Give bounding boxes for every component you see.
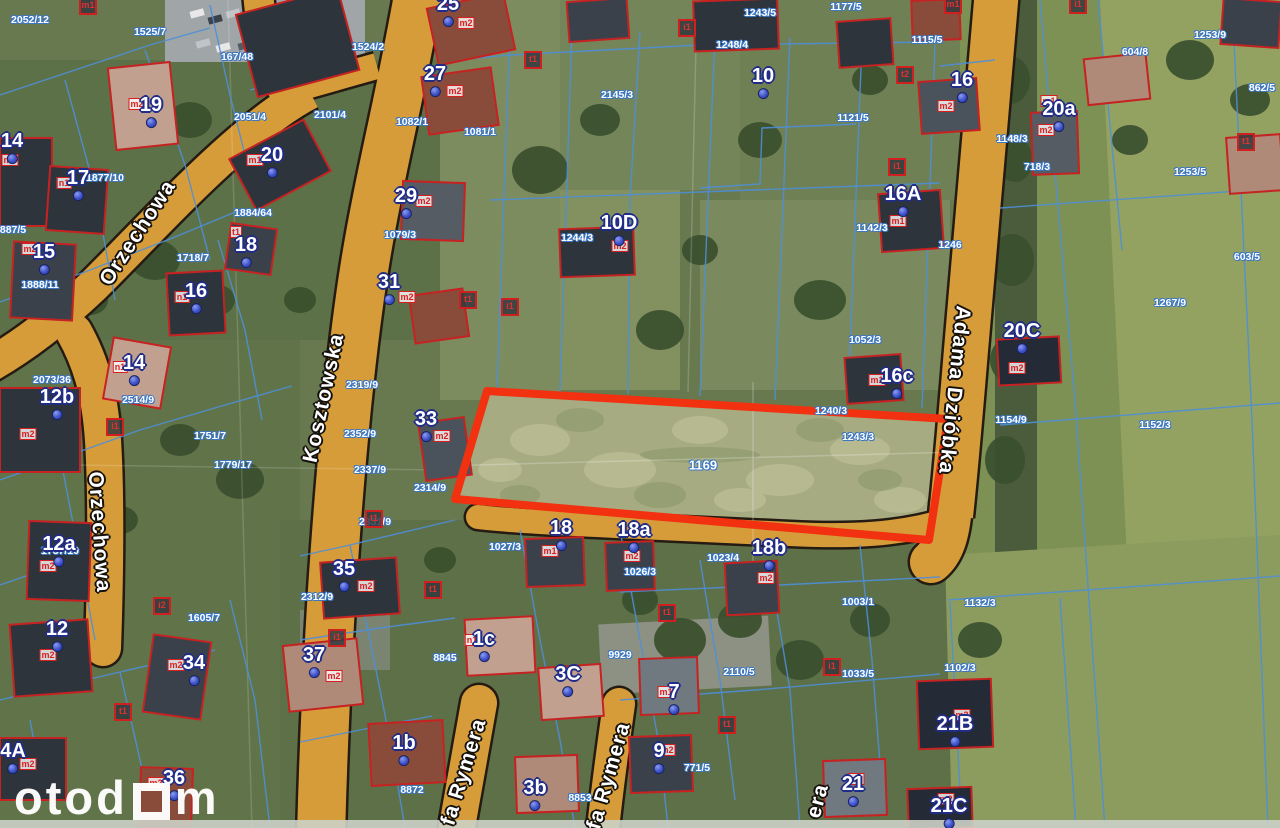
house-number-marker[interactable]: 29 (395, 186, 417, 219)
street-name-label: Orzechowa (95, 176, 181, 291)
house-number-marker[interactable]: 35 (333, 559, 355, 592)
address-point-dot[interactable] (129, 375, 140, 386)
parcel-number-label: 1253/5 (1174, 167, 1206, 178)
house-number-label: 10 (752, 66, 774, 86)
house-number-label: 16 (185, 281, 207, 301)
address-point-dot[interactable] (669, 704, 680, 715)
address-point-dot[interactable] (189, 675, 200, 686)
house-number-label: 19 (140, 95, 162, 115)
parcel-number-label: 1240/3 (815, 406, 847, 417)
address-point-dot[interactable] (897, 206, 908, 217)
building-code-chip: m2 (19, 428, 36, 440)
street-name-label: fa Rymera (436, 716, 491, 828)
house-number-label: 15 (33, 242, 55, 262)
parcel-number-label: 1148/3 (996, 134, 1028, 145)
house-number-marker[interactable]: 18 (550, 518, 572, 551)
parcel-number-label: 1524/2 (352, 42, 384, 53)
address-point-dot[interactable] (848, 796, 859, 807)
house-number-marker[interactable]: 10 (752, 66, 774, 99)
outbuilding-marker: i1 (501, 298, 519, 316)
house-number-marker[interactable]: 27 (424, 64, 446, 97)
address-point-dot[interactable] (191, 303, 202, 314)
street-name-label: fa Rymera (582, 720, 636, 828)
outbuilding-marker: i1 (888, 158, 906, 176)
parcel-number-label: 1525/7 (134, 27, 166, 38)
parcel-number-label: 1248/4 (716, 40, 748, 51)
house-number-label: 14 (1, 131, 23, 151)
parcel-number-label: 1243/3 (842, 432, 874, 443)
outbuilding-marker: m1 (944, 0, 962, 14)
house-number-label: 20 (261, 145, 283, 165)
house-number-marker[interactable]: 21 (842, 774, 864, 807)
address-point-dot[interactable] (556, 540, 567, 551)
address-point-dot[interactable] (399, 755, 410, 766)
parcel-number-label: 1052/3 (849, 335, 881, 346)
building-code-chip: m2 (457, 17, 474, 29)
address-point-dot[interactable] (146, 117, 157, 128)
house-number-marker[interactable]: 4A (0, 741, 26, 774)
address-point-dot[interactable] (1054, 121, 1065, 132)
outbuilding-marker: t1 (1237, 133, 1255, 151)
outbuilding-marker: i1 (678, 19, 696, 37)
parcel-number-label: 1026/3 (624, 567, 656, 578)
outbuilding-marker: t1 (718, 716, 736, 734)
address-point-dot[interactable] (52, 409, 63, 420)
address-point-dot[interactable] (949, 736, 960, 747)
house-number-label: 25 (437, 0, 459, 14)
address-point-dot[interactable] (73, 190, 84, 201)
outbuilding-marker: t2 (896, 66, 914, 84)
parcel-number-label: 718/3 (1024, 162, 1050, 173)
house-number-label: 16c (880, 366, 913, 386)
house-number-label: 18a (617, 520, 650, 540)
street-name-label: era (802, 781, 834, 821)
parcel-number-label: 862/5 (1249, 83, 1275, 94)
building-code-chip: m2 (357, 580, 374, 592)
house-number-marker[interactable]: 16 (951, 70, 973, 103)
parcel-number-label: 2110/5 (723, 667, 755, 678)
house-number-label: 16A (885, 184, 922, 204)
parcel-number-label: 1132/3 (964, 598, 996, 609)
house-number-marker[interactable]: 9 (653, 741, 664, 774)
house-number-label: 29 (395, 186, 417, 206)
address-point-dot[interactable] (479, 651, 490, 662)
parcel-number-label: 1751/7 (194, 431, 226, 442)
house-number-label: 4A (0, 741, 26, 761)
house-number-label: 9 (653, 741, 664, 761)
house-number-marker[interactable]: 33 (415, 409, 437, 442)
house-number-label: 12a (42, 534, 75, 554)
outbuilding-marker: m1 (79, 0, 97, 15)
address-point-dot[interactable] (562, 686, 573, 697)
parcel-number-label: 2337/9 (354, 465, 386, 476)
house-number-label: 17 (67, 168, 89, 188)
address-point-dot[interactable] (530, 800, 541, 811)
parcel-number-label: 8872 (400, 785, 423, 796)
outbuilding-marker: i2 (153, 597, 171, 615)
parcel-number-label: 1718/7 (177, 253, 209, 264)
address-point-dot[interactable] (1016, 343, 1027, 354)
house-number-label: 21C (931, 796, 968, 816)
house-number-label: 18b (752, 538, 786, 558)
house-number-label: 14 (123, 353, 145, 373)
parcel-number-label: 1267/9 (1154, 298, 1186, 309)
parcel-number-label: 1154/9 (995, 415, 1027, 426)
outbuilding-marker: i1 (823, 658, 841, 676)
address-point-dot[interactable] (892, 388, 903, 399)
address-point-dot[interactable] (957, 92, 968, 103)
parcel-number-label: 771/5 (684, 763, 710, 774)
parcel-number-label: 1779/17 (214, 460, 252, 471)
address-point-dot[interactable] (401, 208, 412, 219)
parcel-number-label: 604/8 (1122, 47, 1148, 58)
building-code-chip: m2 (1008, 362, 1025, 374)
street-name-label: Kosztowska (299, 331, 350, 464)
house-number-label: 27 (424, 64, 446, 84)
house-number-marker[interactable]: 19 (140, 95, 162, 128)
watermark-square-glyph (133, 783, 170, 820)
outbuilding-marker: t1 (524, 51, 542, 69)
house-number-label: 21B (937, 714, 974, 734)
watermark-text-right: m (175, 774, 220, 821)
house-number-label: 33 (415, 409, 437, 429)
house-number-marker[interactable]: 3C (555, 664, 581, 697)
house-number-label: 21 (842, 774, 864, 794)
address-point-dot[interactable] (309, 667, 320, 678)
parcel-number-label: 1121/5 (837, 113, 869, 124)
house-number-marker[interactable]: 18b (752, 538, 786, 571)
building-code-chip: m2 (325, 670, 342, 682)
house-number-marker[interactable]: 14 (123, 353, 145, 386)
house-number-marker[interactable]: 17 (67, 168, 89, 201)
cadastral-map: 191417201518161412b12a12344A362527293133… (0, 0, 1280, 828)
house-number-label: 37 (303, 645, 325, 665)
address-point-dot[interactable] (39, 264, 50, 275)
house-number-marker[interactable]: 25 (437, 0, 459, 27)
house-number-marker[interactable]: 7 (668, 682, 679, 715)
house-number-marker[interactable]: 3b (523, 778, 546, 811)
parcel-number-label: 1877/10 (86, 173, 124, 184)
parcel-number-label: 2312/9 (301, 592, 333, 603)
address-point-dot[interactable] (7, 153, 18, 164)
parcel-number-label: 1177/5 (830, 2, 862, 13)
address-point-dot[interactable] (430, 86, 441, 97)
parcel-number-label: 8845 (433, 653, 456, 664)
outbuilding-marker: i1 (106, 418, 124, 436)
parcel-number-label: 1152/3 (1139, 420, 1171, 431)
house-number-label: 7 (668, 682, 679, 702)
address-point-dot[interactable] (629, 542, 640, 553)
otodom-watermark: otodm (14, 774, 220, 821)
house-number-label: 1c (473, 629, 495, 649)
outbuilding-marker: i1 (1069, 0, 1087, 14)
building-code-chip: m2 (398, 291, 415, 303)
street-name-label: Adama Dzióbka (933, 305, 975, 476)
parcel-number-label: 1023/4 (707, 553, 739, 564)
parcel-number-label: 2314/9 (414, 483, 446, 494)
parcel-number-label: 1115/5 (912, 35, 943, 46)
address-point-dot[interactable] (384, 294, 395, 305)
house-number-marker[interactable]: 20C (1004, 321, 1041, 354)
house-number-marker[interactable]: 21B (937, 714, 974, 747)
parcel-number-label: 1246 (938, 240, 961, 251)
parcel-number-label: 1888/11 (21, 280, 58, 291)
parcel-number-label: 2145/3 (601, 90, 633, 101)
house-number-label: 31 (378, 272, 400, 292)
house-number-marker[interactable]: 18a (617, 520, 650, 553)
labels-layer: 191417201518161412b12a12344A362527293133… (0, 0, 1280, 828)
building-code-chip: m2 (415, 195, 432, 207)
house-number-marker[interactable]: 18 (235, 235, 257, 268)
house-number-label: 3b (523, 778, 546, 798)
house-number-marker[interactable]: 12 (46, 619, 68, 652)
parcel-number-label: 2052/12 (11, 15, 49, 26)
outbuilding-marker: t1 (424, 581, 442, 599)
building-code-chip: m2 (757, 572, 774, 584)
parcel-number-label: 1102/3 (944, 663, 976, 674)
parcel-number-label: 1027/3 (489, 542, 521, 553)
address-point-dot[interactable] (52, 641, 63, 652)
building-code-chip: m2 (446, 85, 463, 97)
street-name-label: Orzechowa (83, 471, 115, 593)
address-point-dot[interactable] (943, 818, 954, 828)
parcel-number-label: 887/5 (0, 225, 26, 236)
parcel-number-label: 2352/9 (344, 429, 376, 440)
parcel-number-label: 1033/5 (842, 669, 874, 680)
house-number-label: 3C (555, 664, 581, 684)
house-number-marker[interactable]: 12a (42, 534, 75, 567)
parcel-number-label: 1142/3 (856, 223, 888, 234)
outbuilding-marker: t1 (658, 604, 676, 622)
parcel-number-label: 2073/36 (33, 375, 71, 386)
house-number-marker[interactable]: 12b (40, 387, 74, 420)
house-number-label: 10D (601, 213, 638, 233)
address-point-dot[interactable] (613, 235, 624, 246)
parcel-number-label: 1243/5 (744, 8, 776, 19)
address-point-dot[interactable] (443, 16, 454, 27)
house-number-marker[interactable]: 1b (392, 733, 415, 766)
address-point-dot[interactable] (654, 763, 665, 774)
parcel-number-label: 9929 (608, 650, 631, 661)
address-point-dot[interactable] (421, 431, 432, 442)
house-number-label: 35 (333, 559, 355, 579)
parcel-number-label: 1082/1 (396, 117, 428, 128)
parcel-number-label: 1079/3 (384, 230, 416, 241)
parcel-number-label: 2051/4 (234, 112, 266, 123)
address-point-dot[interactable] (764, 560, 775, 571)
house-number-label: 20C (1004, 321, 1041, 341)
house-number-marker[interactable]: 37 (303, 645, 325, 678)
house-number-label: 12 (46, 619, 68, 639)
parcel-number-label: 2514/9 (122, 395, 154, 406)
house-number-label: 18 (235, 235, 257, 255)
parcel-number-label: 1003/1 (842, 597, 874, 608)
parcel-number-label: 2101/4 (314, 110, 346, 121)
house-number-marker[interactable]: 16 (185, 281, 207, 314)
address-point-dot[interactable] (267, 167, 278, 178)
house-number-label: 18 (550, 518, 572, 538)
house-number-marker[interactable]: 20a (1042, 99, 1075, 132)
house-number-marker[interactable]: 16c (880, 366, 913, 399)
house-number-label: 20a (1042, 99, 1075, 119)
house-number-marker[interactable]: 31 (378, 272, 400, 305)
address-point-dot[interactable] (758, 88, 769, 99)
house-number-marker[interactable]: 15 (33, 242, 55, 275)
parcel-number-label: 2319/9 (346, 380, 378, 391)
house-number-marker[interactable]: 1c (473, 629, 495, 662)
parcel-number-label: 1081/1 (464, 127, 496, 138)
address-point-dot[interactable] (339, 581, 350, 592)
house-number-marker[interactable]: 21C (931, 796, 968, 828)
parcel-number-label: 1884/64 (234, 208, 272, 219)
outbuilding-marker: t1 (459, 291, 477, 309)
house-number-label: 16 (951, 70, 973, 90)
house-number-marker[interactable]: 34 (183, 653, 205, 686)
house-number-marker[interactable]: 14 (1, 131, 23, 164)
parcel-number-label: 167/48 (221, 52, 253, 63)
address-point-dot[interactable] (241, 257, 252, 268)
house-number-marker[interactable]: 10D (601, 213, 638, 246)
parcel-number-label: 1253/9 (1194, 30, 1226, 41)
outbuilding-marker: t1 (365, 510, 383, 528)
outbuilding-marker: t1 (114, 703, 132, 721)
address-point-dot[interactable] (54, 556, 65, 567)
watermark-text-left: otod (14, 774, 128, 821)
house-number-label: 12b (40, 387, 74, 407)
house-number-marker[interactable]: 16A (885, 184, 922, 217)
parcel-number-label: 1605/7 (188, 613, 220, 624)
outbuilding-marker: i1 (328, 629, 346, 647)
parcel-number-label: 603/5 (1234, 252, 1260, 263)
house-number-label: 1b (392, 733, 415, 753)
parcel-number-label: 1169 (689, 459, 717, 472)
parcel-number-label: 1244/3 (561, 233, 593, 244)
house-number-marker[interactable]: 20 (261, 145, 283, 178)
house-number-label: 34 (183, 653, 205, 673)
